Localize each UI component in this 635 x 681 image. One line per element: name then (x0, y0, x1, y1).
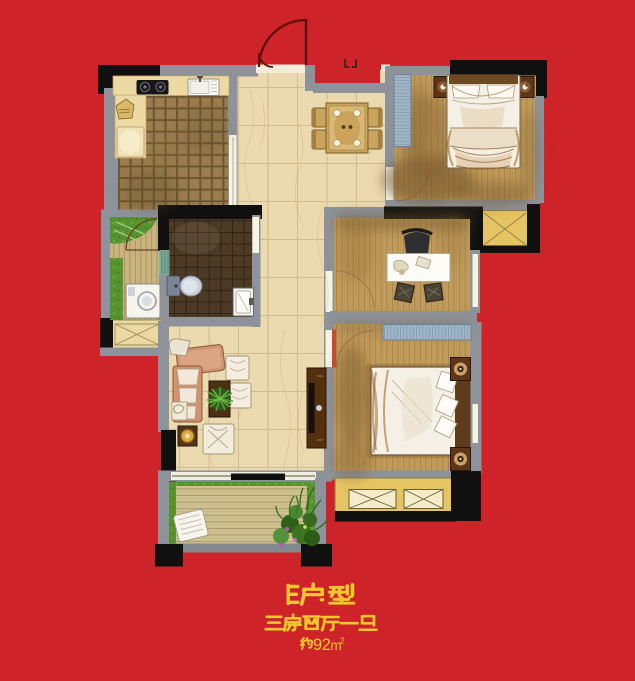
svg-text:92: 92 (313, 636, 331, 654)
svg-text:2: 2 (340, 636, 345, 646)
